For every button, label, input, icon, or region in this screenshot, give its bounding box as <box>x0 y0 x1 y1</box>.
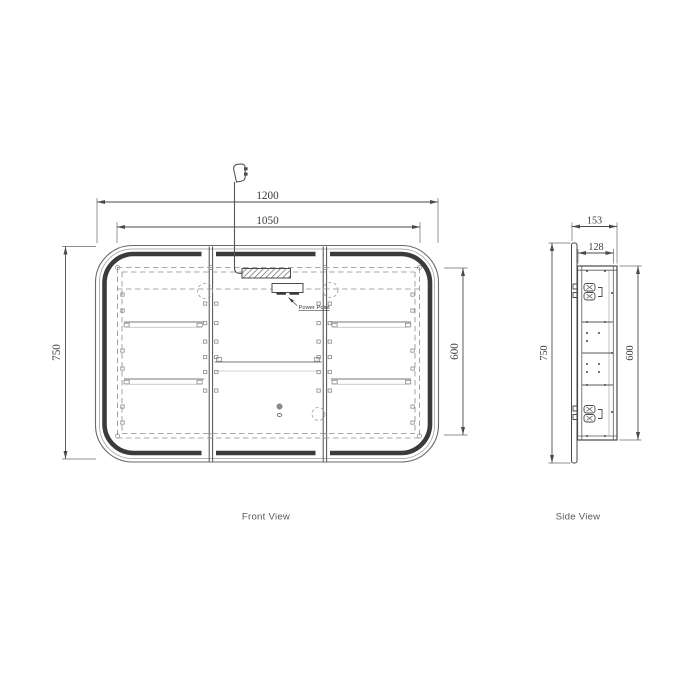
dim-front-inner-width: 1050 <box>256 215 279 227</box>
power-point-label: Power Point <box>299 305 331 311</box>
power-plug-icon <box>234 164 248 182</box>
dim-side-overall-height: 750 <box>539 345 550 360</box>
technical-drawing: Power Point 1200 1050 750 <box>0 0 700 700</box>
dimension-front-inner-width: 1050 <box>117 215 420 243</box>
dimension-side-overall-height: 750 <box>539 243 571 463</box>
side-mirror-panel <box>572 243 578 463</box>
dimension-side-inner-height: 600 <box>620 266 642 440</box>
dim-side-inner-height: 600 <box>625 345 636 360</box>
dimension-side-inner-depth: 128 <box>578 242 614 264</box>
side-view-label: Side View <box>556 512 601 523</box>
dim-front-inner-height: 600 <box>449 343 461 360</box>
led-driver-hatched-box <box>242 269 291 279</box>
front-view: Power Point 1200 1050 750 <box>51 164 468 462</box>
power-point-outlet <box>272 284 303 294</box>
side-view: 153 128 750 600 <box>539 216 642 464</box>
dimension-front-overall-height: 750 <box>51 247 96 460</box>
dim-front-overall-width: 1200 <box>256 190 279 202</box>
dim-front-overall-height: 750 <box>51 344 63 361</box>
drawing-canvas: Power Point 1200 1050 750 <box>0 0 700 700</box>
front-view-label: Front View <box>242 512 290 523</box>
dim-side-overall-depth: 153 <box>587 216 602 227</box>
dimension-front-inner-height: 600 <box>444 268 468 435</box>
dim-side-inner-depth: 128 <box>588 242 603 253</box>
dimension-side-overall-depth: 153 <box>572 216 617 264</box>
